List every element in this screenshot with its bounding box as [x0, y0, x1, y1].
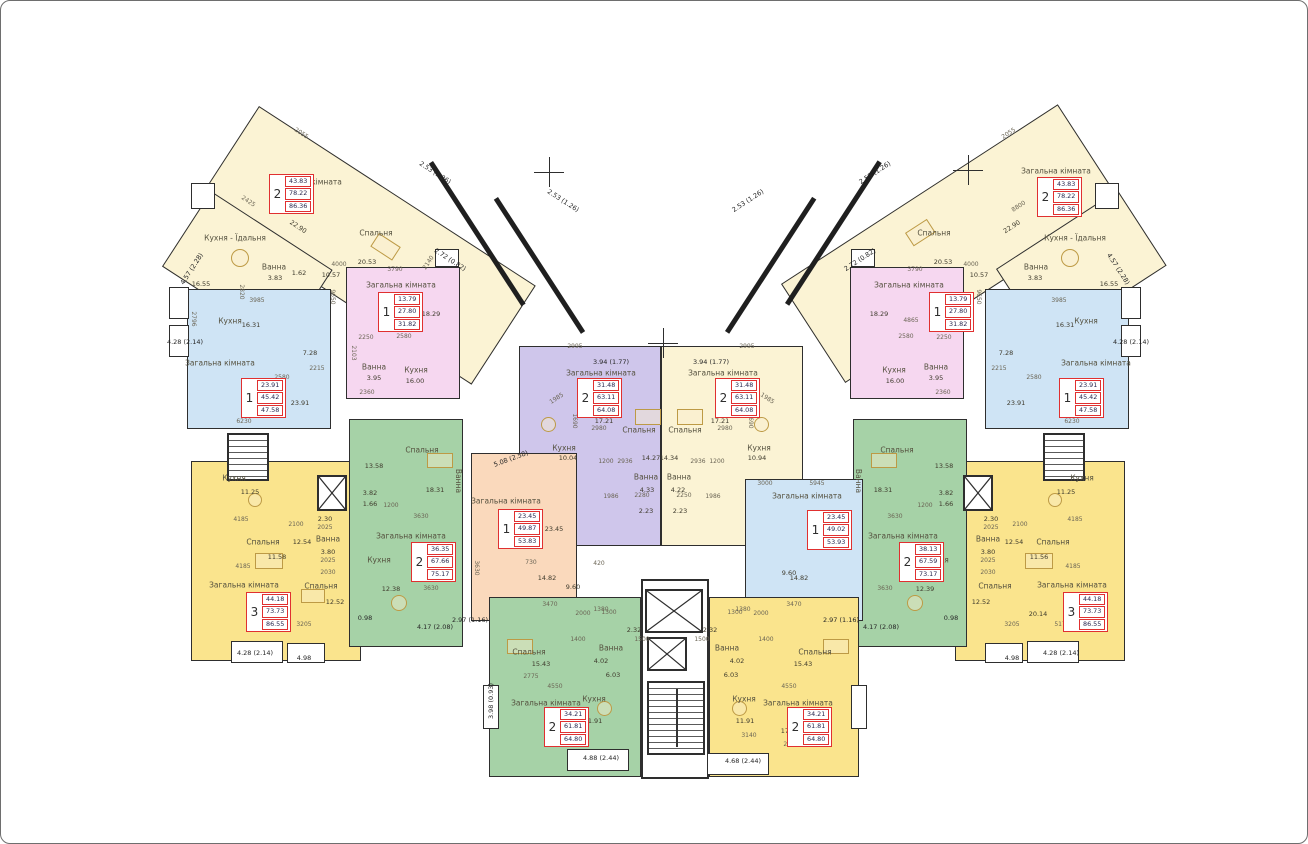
area-value: 78.22 [1053, 191, 1079, 202]
area-values: 23.4549.8753.83 [514, 511, 540, 547]
label-room: Загальна кімната [185, 359, 255, 367]
label-room: Спальня [622, 426, 655, 434]
label-bal: 4.88 (2.44) [583, 755, 619, 762]
label-dim: 3790 [907, 267, 922, 273]
label-area: 3.95 [929, 375, 943, 382]
label-area: 11.25 [241, 489, 260, 496]
label-dim: 4185 [1067, 517, 1082, 523]
label-dim: 2025 [317, 525, 332, 531]
label-area: 20.14 [1029, 611, 1048, 618]
survey-cross-mark [648, 328, 678, 358]
label-dim: 2025 [980, 558, 995, 564]
label-dim: 2280 [634, 493, 649, 499]
label-room: Загальна кімната [874, 281, 944, 289]
label-dim: 2775 [523, 674, 538, 680]
label-area: 17.21 [595, 418, 614, 425]
label-room: Ванна [715, 644, 739, 652]
label-room: Загальна кімната [376, 532, 446, 540]
label-dim: 2936 [690, 459, 705, 465]
label-area: 18.29 [870, 311, 889, 318]
area-value: 27.80 [394, 306, 420, 317]
label-area: 14.34 [660, 455, 679, 462]
label-area: 7.28 [303, 350, 317, 357]
label-room: Загальна кімната [511, 699, 581, 707]
room-count: 3 [1066, 594, 1077, 630]
area-values: 13.7927.8031.82 [394, 294, 420, 330]
area-value: 47.58 [257, 405, 283, 416]
label-dim: 2995 [739, 344, 754, 350]
area-value: 23.91 [1075, 380, 1101, 391]
label-dim: 4550 [547, 684, 562, 690]
furniture-table [754, 417, 769, 432]
elevator-shaft [645, 589, 703, 633]
label-dim: 2100 [288, 522, 303, 528]
label-area: 11.91 [736, 718, 755, 725]
label-room: Кухня [552, 444, 576, 452]
label-dim: 5945 [809, 481, 824, 487]
label-dim: 2820 [238, 284, 244, 299]
area-value: 64.08 [731, 405, 757, 416]
label-area: 13.58 [935, 463, 954, 470]
room-count: 1 [810, 512, 821, 548]
room-count: 2 [580, 380, 591, 416]
stat-box-apt-2k-green-right: 238.1367.5973.17 [899, 542, 944, 582]
label-dim: 1986 [705, 494, 720, 500]
room-count: 1 [381, 294, 392, 330]
label-dim: 4000 [331, 262, 346, 268]
label-dim: 2980 [591, 426, 606, 432]
label-area: 1.62 [292, 270, 306, 277]
label-area: 10.57 [322, 272, 341, 279]
area-value: 43.83 [285, 176, 311, 187]
label-area: 10.94 [748, 455, 767, 462]
balcony [1095, 183, 1119, 209]
area-value: 31.82 [394, 319, 420, 330]
elevator-shaft [963, 475, 993, 511]
area-value: 67.66 [427, 556, 453, 567]
label-bal: 2.53 (1.26) [546, 188, 580, 213]
furniture-table [541, 417, 556, 432]
label-dim: 2030 [980, 570, 995, 576]
label-bal: 3.94 (1.77) [693, 359, 729, 366]
area-value: 86.55 [262, 619, 288, 630]
label-room: Загальна кімната [763, 699, 833, 707]
label-dim: 2980 [717, 426, 732, 432]
stat-box-apt-2k-top-left: 243.8378.2286.36 [269, 174, 314, 214]
stat-box-apt-1k-blue-left: 123.9145.4247.58 [241, 378, 286, 418]
label-area: 20.53 [358, 259, 377, 266]
room-count: 2 [718, 380, 729, 416]
label-room: Спальня [246, 538, 279, 546]
label-area: 3.82 [939, 490, 953, 497]
furniture-bed [677, 409, 703, 425]
label-dim: 3470 [542, 602, 557, 608]
label-dim: 2360 [359, 390, 374, 396]
room-count: 2 [414, 544, 425, 580]
label-area: 12.52 [972, 599, 991, 606]
furniture-table [231, 249, 249, 267]
label-area: 3.80 [321, 549, 335, 556]
area-value: 45.42 [1075, 392, 1101, 403]
area-values: 44.1873.7386.55 [262, 594, 288, 630]
label-area: 16.31 [1056, 322, 1075, 329]
label-room: Загальна кімната [566, 369, 636, 377]
label-room: Загальна кімната [1061, 359, 1131, 367]
label-area: 4.02 [594, 658, 608, 665]
label-bal: 0.98 [944, 615, 958, 622]
label-room: Спальня [1036, 538, 1069, 546]
label-dim: 2030 [320, 570, 335, 576]
area-value: 73.73 [262, 606, 288, 617]
label-area: 6.03 [606, 672, 620, 679]
furniture-bed [301, 589, 325, 603]
floor-plan: Загальна кімната2.53 (1.26)2.53 (1.26)20… [0, 0, 1308, 844]
area-value: 45.42 [257, 392, 283, 403]
label-bal: 4.28 (2.14) [167, 339, 203, 346]
label-area: 12.39 [916, 586, 935, 593]
label-dim: 3205 [296, 622, 311, 628]
stat-box-apt-2k-purple: 231.4863.1164.08 [577, 378, 622, 418]
label-room: Спальня [405, 446, 438, 454]
room-count: 1 [1062, 380, 1073, 416]
label-room: Ванна [362, 363, 386, 371]
label-area: 1.66 [939, 501, 953, 508]
label-room: Ванна [924, 363, 948, 371]
label-area: 2.30 [984, 516, 998, 523]
stat-box-apt-2k-cream-center: 231.4863.1164.08 [715, 378, 760, 418]
area-values: 44.1873.7386.55 [1079, 594, 1105, 630]
label-room: Загальна кімната [1021, 167, 1091, 175]
label-area: 18.31 [426, 487, 445, 494]
area-values: 34.2161.8164.80 [803, 709, 829, 745]
stat-box-apt-1k-pink-right: 113.7927.8031.82 [929, 292, 974, 332]
stat-box-apt-3k-yellow-left: 344.1873.7386.55 [246, 592, 291, 632]
area-values: 13.7927.8031.82 [945, 294, 971, 330]
label-room: Загальна кімната [1037, 581, 1107, 589]
area-value: 47.58 [1075, 405, 1101, 416]
survey-cross-mark [534, 157, 564, 187]
area-values: 43.8378.2286.36 [285, 176, 311, 212]
label-bal: 0.98 [358, 615, 372, 622]
label-area: 2.32 [627, 627, 641, 634]
area-value: 43.83 [1053, 179, 1079, 190]
area-values: 31.4863.1164.08 [593, 380, 619, 416]
label-dim: 3630 [423, 586, 438, 592]
label-dim: 1400 [758, 637, 773, 643]
area-values: 43.8378.2286.36 [1053, 179, 1079, 215]
label-dim: 3985 [1051, 298, 1066, 304]
label-dim: 2250 [676, 493, 691, 499]
area-value: 53.93 [823, 537, 849, 548]
label-area: 14.27 [642, 455, 661, 462]
label-bal: 4.17 (2.08) [863, 624, 899, 631]
room-count: 1 [244, 380, 255, 416]
label-area: 3.80 [981, 549, 995, 556]
area-value: 31.48 [593, 380, 619, 391]
label-bal: 4.28 (2.14) [1113, 339, 1149, 346]
label-area: 16.00 [886, 378, 905, 385]
label-room: Ванна [599, 644, 623, 652]
label-dim: 3985 [249, 298, 264, 304]
label-dim: 1200 [917, 503, 932, 509]
label-area: 4.02 [730, 658, 744, 665]
label-area: 3.83 [1028, 275, 1042, 282]
furniture-table [907, 595, 923, 611]
area-values: 23.9145.4247.58 [257, 380, 283, 416]
label-area: 3.82 [363, 490, 377, 497]
area-value: 63.11 [593, 392, 619, 403]
stat-box-apt-1k-blue-center: 123.4549.0253.93 [807, 510, 852, 550]
stat-box-apt-2k-yellow-bottom: 234.2161.8164.80 [787, 707, 832, 747]
label-area: 18.29 [422, 311, 441, 318]
furniture-bed [427, 453, 453, 468]
label-dim: 4185 [233, 517, 248, 523]
label-room: Кухня [1074, 317, 1098, 325]
area-value: 44.18 [1079, 594, 1105, 605]
balcony [191, 183, 215, 209]
balcony [1121, 287, 1141, 319]
stat-box-apt-2k-green-bottom: 234.2161.8164.80 [544, 707, 589, 747]
stat-box-apt-2k-top-right: 243.8378.2286.36 [1037, 177, 1082, 217]
label-room: Загальна кімната [471, 497, 541, 505]
label-dim: 2025 [983, 525, 998, 531]
label-dim: 2250 [936, 335, 951, 341]
label-dim: 3140 [741, 733, 756, 739]
area-value: 49.02 [823, 524, 849, 535]
label-room: Спальня [668, 426, 701, 434]
label-room: Ванна [976, 535, 1000, 543]
label-area: 11.56 [1030, 554, 1049, 561]
label-area: 20.53 [934, 259, 953, 266]
furniture-bed [635, 409, 661, 425]
room-count: 2 [1040, 179, 1051, 215]
label-bal: 2.97 (1.16) [823, 617, 859, 624]
balcony [851, 685, 867, 729]
label-dim: 730 [525, 560, 536, 566]
area-value: 61.81 [803, 721, 829, 732]
label-area: 11.25 [1057, 489, 1076, 496]
room-count: 3 [249, 594, 260, 630]
label-dim: 2360 [935, 390, 950, 396]
area-value: 13.79 [394, 294, 420, 305]
area-value: 36.35 [427, 544, 453, 555]
label-area: 13.58 [365, 463, 384, 470]
label-area: 7.28 [999, 350, 1013, 357]
label-dim: 2215 [309, 366, 324, 372]
label-dim: 3630 [877, 586, 892, 592]
label-dim: 1300 [601, 610, 616, 616]
label-area: 15.43 [532, 661, 551, 668]
room-count: 1 [932, 294, 943, 330]
area-value: 31.48 [731, 380, 757, 391]
label-dim: 2995 [567, 344, 582, 350]
label-dim: 1400 [570, 637, 585, 643]
label-room: Ванна [454, 469, 462, 493]
label-room: Ванна [634, 473, 658, 481]
area-value: 63.11 [731, 392, 757, 403]
label-room: Спальня [978, 582, 1011, 590]
label-dim: 4185 [1065, 564, 1080, 570]
room-count: 2 [790, 709, 801, 745]
label-area: 2.30 [318, 516, 332, 523]
label-room: Кухня [882, 366, 906, 374]
label-room: Кухня [747, 444, 771, 452]
stat-box-apt-1k-pink-left: 113.7927.8031.82 [378, 292, 423, 332]
area-values: 36.3567.6675.17 [427, 544, 453, 580]
area-value: 64.08 [593, 405, 619, 416]
label-room: Ванна [316, 535, 340, 543]
label-dim: 2250 [358, 335, 373, 341]
label-room: Кухня [582, 695, 606, 703]
area-value: 49.87 [514, 523, 540, 534]
label-area: 14.82 [790, 575, 809, 582]
label-room: Ванна [854, 469, 862, 493]
balcony [169, 287, 189, 319]
label-dim: 1200 [598, 459, 613, 465]
area-value: 27.80 [945, 306, 971, 317]
label-dim: 6230 [1064, 419, 1079, 425]
label-area: 1.66 [363, 501, 377, 508]
label-bal: 2.97 (1.16) [452, 617, 488, 624]
label-area: 2.32 [703, 627, 717, 634]
furniture-table [732, 701, 747, 716]
label-room: Спальня [798, 648, 831, 656]
label-area: 14.82 [538, 575, 557, 582]
stair-rail [676, 689, 678, 748]
area-value: 44.18 [262, 594, 288, 605]
label-dim: 2580 [898, 334, 913, 340]
stat-box-apt-2k-green-left: 236.3567.6675.17 [411, 542, 456, 582]
area-value: 64.80 [560, 734, 586, 745]
label-dim: 3630 [473, 560, 479, 575]
stat-box-apt-1k-orange: 123.4549.8753.83 [498, 509, 543, 549]
label-bal: 3.94 (1.77) [593, 359, 629, 366]
label-room: Кухня [222, 474, 246, 482]
label-dim: 1300 [727, 610, 742, 616]
area-value: 78.22 [285, 188, 311, 199]
label-room: Спальня [917, 229, 950, 237]
label-dim: 4865 [903, 318, 918, 324]
area-value: 38.13 [915, 544, 941, 555]
label-room: Кухня [1070, 474, 1094, 482]
label-area: 16.55 [192, 281, 211, 288]
label-dim: 2000 [575, 611, 590, 617]
area-value: 23.45 [823, 512, 849, 523]
label-room: Спальня [304, 582, 337, 590]
label-area: 2.23 [673, 508, 687, 515]
label-room: Кухня - Їдальня [1044, 234, 1106, 242]
area-value: 86.36 [1053, 204, 1079, 215]
label-room: Спальня [512, 648, 545, 656]
area-value: 23.91 [257, 380, 283, 391]
area-value: 75.17 [427, 569, 453, 580]
label-dim: 3630 [887, 514, 902, 520]
label-dim: 6230 [236, 419, 251, 425]
label-area: 12.54 [293, 539, 312, 546]
area-value: 61.81 [560, 721, 586, 732]
cross-line-v [663, 328, 664, 358]
label-area: 12.52 [326, 599, 345, 606]
label-dim: 1986 [603, 494, 618, 500]
area-values: 23.9145.4247.58 [1075, 380, 1101, 416]
area-values: 38.1367.5973.17 [915, 544, 941, 580]
label-bal: 2.53 (1.26) [731, 188, 765, 213]
label-bal: 4.98 [1005, 655, 1019, 662]
area-values: 31.4863.1164.08 [731, 380, 757, 416]
area-value: 53.83 [514, 536, 540, 547]
label-dim: 2100 [1012, 522, 1027, 528]
label-dim: 420 [593, 561, 604, 567]
label-bal: 4.17 (2.08) [417, 624, 453, 631]
label-area: 9.60 [566, 584, 580, 591]
label-room: Кухня - Їдальня [204, 234, 266, 242]
furniture-table [1061, 249, 1079, 267]
label-bal: 4.28 (2.14) [1043, 650, 1079, 657]
label-room: Загальна кімната [209, 581, 279, 589]
label-room: Ванна [262, 263, 286, 271]
room-count: 2 [902, 544, 913, 580]
area-value: 67.59 [915, 556, 941, 567]
label-dim: 2580 [1026, 375, 1041, 381]
label-area: 10.57 [970, 272, 989, 279]
label-dim: 4185 [235, 564, 250, 570]
label-dim: 2103 [350, 345, 356, 360]
label-dim: 4000 [963, 262, 978, 268]
survey-cross-mark [953, 155, 983, 185]
area-value: 34.21 [803, 709, 829, 720]
area-value: 23.45 [514, 511, 540, 522]
label-area: 17.21 [711, 418, 730, 425]
area-value: 86.36 [285, 201, 311, 212]
furniture-bed [871, 453, 897, 468]
label-dim: 3630 [413, 514, 428, 520]
label-dim: 1500 [694, 637, 709, 643]
area-values: 23.4549.0253.93 [823, 512, 849, 548]
stat-box-apt-3k-yellow-right: 344.1873.7386.55 [1063, 592, 1108, 632]
label-room: Кухня [404, 366, 428, 374]
label-area: 10.04 [559, 455, 578, 462]
stat-box-apt-1k-blue-right: 123.9145.4247.58 [1059, 378, 1104, 418]
label-room: Загальна кімната [366, 281, 436, 289]
label-area: 16.00 [406, 378, 425, 385]
label-dim: 2796 [190, 311, 196, 326]
label-area: 11.58 [268, 554, 287, 561]
room-count: 2 [272, 176, 283, 212]
label-room: Кухня [732, 695, 756, 703]
label-bal: 3.98 (0.93) [488, 683, 495, 719]
label-dim: 1200 [383, 503, 398, 509]
label-room: Ванна [667, 473, 691, 481]
label-area: 6.03 [724, 672, 738, 679]
label-area: 3.95 [367, 375, 381, 382]
label-dim: 9650 [975, 289, 981, 304]
label-room: Кухня [367, 556, 391, 564]
label-dim: 2000 [753, 611, 768, 617]
label-area: 12.54 [1005, 539, 1024, 546]
label-area: 2.23 [639, 508, 653, 515]
furniture-table [597, 701, 612, 716]
label-area: 15.43 [794, 661, 813, 668]
elevator-shaft [647, 637, 687, 671]
label-area: 23.91 [291, 400, 310, 407]
area-values: 34.2161.8164.80 [560, 709, 586, 745]
label-dim: 2025 [320, 558, 335, 564]
label-room: Загальна кімната [772, 492, 842, 500]
label-area: 16.31 [242, 322, 261, 329]
label-bal: 4.68 (2.44) [725, 758, 761, 765]
area-value: 86.55 [1079, 619, 1105, 630]
area-value: 13.79 [945, 294, 971, 305]
